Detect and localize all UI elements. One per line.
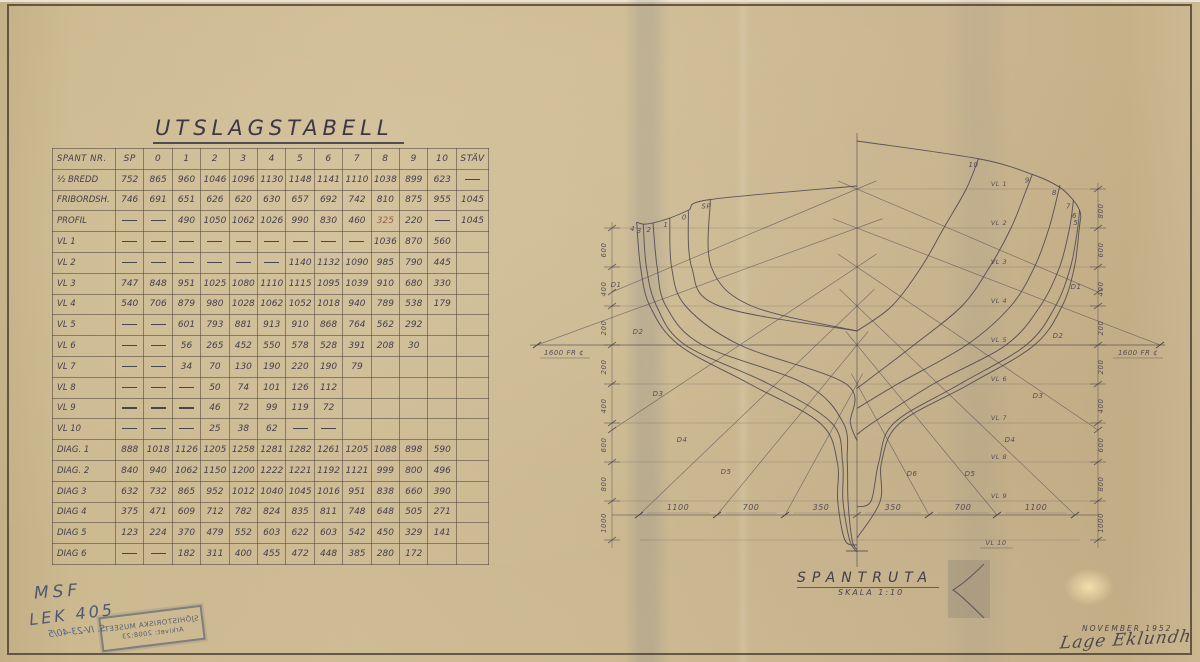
value-cell (457, 336, 489, 357)
dash-mark (122, 366, 137, 367)
dim-label-right: 400 (1097, 282, 1105, 297)
value-cell: 898 (400, 440, 428, 461)
plan-scale: SKALA 1:10 (838, 588, 904, 597)
value-cell: 1080 (229, 273, 257, 294)
value-cell (457, 356, 489, 377)
msf-note: MSF (33, 580, 82, 603)
value-cell: 220 (286, 356, 314, 377)
vl-label: VL 4 (991, 297, 1007, 305)
value-cell: 951 (172, 273, 200, 294)
value-cell: 101 (258, 377, 286, 398)
dim-label-left: 600 (600, 243, 608, 258)
value-cell: 1050 (201, 211, 229, 232)
value-cell (144, 544, 172, 565)
offsets-table-container: SPANT NR.SP012345678910STÄV½ BREDD752865… (52, 148, 489, 565)
value-cell: 271 (428, 502, 457, 523)
dash-mark (179, 428, 194, 429)
value-cell: 910 (286, 315, 314, 336)
value-cell: 810 (371, 190, 399, 211)
paper-edge (0, 0, 1200, 2)
value-cell: 590 (428, 440, 457, 461)
row-label-cell: VL 7 (53, 356, 116, 377)
value-cell: 1205 (343, 440, 371, 461)
dash-mark (151, 345, 166, 346)
value-cell: 940 (343, 294, 371, 315)
value-cell: 940 (144, 460, 172, 481)
value-cell: 123 (116, 523, 144, 544)
value-cell: 224 (144, 523, 172, 544)
diag-label: D2 (633, 328, 644, 336)
value-cell (116, 544, 144, 565)
table-row: PROFIL4901050106210269908304603252201045 (53, 211, 489, 232)
dash-mark (435, 220, 450, 221)
value-cell (457, 273, 489, 294)
dim-label-bottom: 1100 (1025, 503, 1047, 512)
value-cell (144, 211, 172, 232)
value-cell: 1012 (229, 481, 257, 502)
row-label-cell: VL 9 (53, 398, 116, 419)
value-cell: 1132 (314, 252, 342, 273)
vl-label: VL 9 (991, 492, 1007, 500)
value-cell: 811 (314, 502, 342, 523)
value-cell: 1018 (314, 294, 342, 315)
diagonal-line (612, 181, 877, 292)
value-cell: 879 (172, 294, 200, 315)
value-cell: 764 (343, 315, 371, 336)
offsets-table: SPANT NR.SP012345678910STÄV½ BREDD752865… (52, 148, 489, 565)
value-cell: 1090 (343, 252, 371, 273)
value-cell: 400 (229, 544, 257, 565)
value-cell (144, 336, 172, 357)
table-row: ½ BREDD752865960104610961130114811411110… (53, 169, 489, 190)
dim-label-right: 600 (1097, 243, 1105, 258)
column-header: SP (116, 149, 144, 170)
dim-label-left: 600 (600, 438, 608, 453)
value-cell: 789 (371, 294, 399, 315)
row-label-cell: VL 8 (53, 377, 116, 398)
value-cell: 609 (172, 502, 200, 523)
value-cell: 46 (201, 398, 229, 419)
value-cell: 952 (201, 481, 229, 502)
value-cell (457, 294, 489, 315)
value-cell: 74 (229, 377, 257, 398)
dim-label-left: 1000 (600, 513, 608, 533)
row-label-cell: DIAG 4 (53, 502, 116, 523)
plan-title: SPANTRUTA (797, 570, 939, 588)
dash-mark (321, 428, 336, 429)
value-cell: 692 (314, 190, 342, 211)
value-cell: 391 (343, 336, 371, 357)
vl-label: VL 3 (991, 258, 1007, 266)
value-cell: 496 (428, 460, 457, 481)
value-cell: 385 (343, 544, 371, 565)
dim-label-left: 400 (600, 282, 608, 297)
value-cell: 479 (201, 523, 229, 544)
value-cell: 1040 (258, 481, 286, 502)
value-cell: 552 (229, 523, 257, 544)
value-cell (457, 440, 489, 461)
value-cell (457, 523, 489, 544)
value-cell: 190 (258, 356, 286, 377)
value-cell: 955 (428, 190, 457, 211)
value-cell (116, 315, 144, 336)
value-cell (400, 419, 428, 440)
table-row: VL 10253862 (53, 419, 489, 440)
archive-handwritten-number: S. IV-23-40/5 (48, 624, 106, 640)
value-cell (258, 252, 286, 273)
value-cell (343, 419, 371, 440)
value-cell: 620 (229, 190, 257, 211)
value-cell: 112 (314, 377, 342, 398)
value-cell: 1025 (201, 273, 229, 294)
value-cell (116, 252, 144, 273)
value-cell: 868 (314, 315, 342, 336)
value-cell: 1282 (286, 440, 314, 461)
header-row: SPANT NR.SP012345678910STÄV (53, 149, 489, 170)
value-cell: 899 (400, 169, 428, 190)
value-cell: 848 (144, 273, 172, 294)
value-cell: 1221 (286, 460, 314, 481)
drawing-sheet: UTSLAGSTABELL SPANT NR.SP012345678910STÄ… (0, 0, 1200, 662)
value-cell: 648 (371, 502, 399, 523)
value-cell: 1095 (314, 273, 342, 294)
dash-mark (236, 241, 251, 242)
dash-mark (151, 366, 166, 367)
value-cell: 1281 (258, 440, 286, 461)
row-label-cell: VL 1 (53, 232, 116, 253)
dash-mark (151, 241, 166, 242)
value-cell: 840 (116, 460, 144, 481)
diag-label: D1 (611, 281, 622, 289)
value-cell (400, 398, 428, 419)
value-cell: 38 (229, 419, 257, 440)
frame-label: SP (702, 203, 712, 211)
column-header: 8 (371, 149, 399, 170)
value-cell: 913 (258, 315, 286, 336)
value-cell: 1126 (172, 440, 200, 461)
diag-label: D1 (1071, 283, 1082, 291)
diag-label: D3 (1033, 392, 1044, 400)
value-cell: 1222 (258, 460, 286, 481)
dash-mark (122, 387, 137, 388)
value-cell: 603 (258, 523, 286, 544)
diagonal-line (833, 219, 1160, 345)
value-cell: 1045 (457, 190, 489, 211)
table-row: VL 7347013019022019079 (53, 356, 489, 377)
dash-mark (151, 262, 166, 263)
value-cell: 62 (258, 419, 286, 440)
dash-mark (151, 407, 166, 408)
table-row: DIAG 51232243704795526036226035424503291… (53, 523, 489, 544)
value-cell: 179 (428, 294, 457, 315)
vl-label: VL 7 (991, 414, 1008, 422)
table-row: DIAG. 1888101811261205125812811282126112… (53, 440, 489, 461)
frame-label: 9 (1025, 176, 1030, 184)
value-cell (172, 232, 200, 253)
value-cell: 325 (371, 211, 399, 232)
value-cell (172, 377, 200, 398)
dash-mark (236, 262, 251, 263)
value-cell: 1088 (371, 440, 399, 461)
value-cell: 528 (314, 336, 342, 357)
vl-label: VL 6 (991, 375, 1007, 383)
value-cell: 1110 (258, 273, 286, 294)
value-cell: 1121 (343, 460, 371, 481)
dim-label-bottom: 700 (955, 503, 972, 512)
value-cell: 1205 (201, 440, 229, 461)
value-cell: 578 (286, 336, 314, 357)
row-label-cell: VL 4 (53, 294, 116, 315)
dash-mark (293, 428, 308, 429)
value-cell: 793 (201, 315, 229, 336)
diagonal-line (639, 289, 874, 515)
row-label-cell: DIAG. 2 (53, 460, 116, 481)
value-cell: 280 (371, 544, 399, 565)
value-cell: 1062 (229, 211, 257, 232)
value-cell: 603 (314, 523, 342, 544)
dash-mark (122, 262, 137, 263)
row-label-cell: DIAG. 1 (53, 440, 116, 461)
value-cell (371, 398, 399, 419)
dash-mark (179, 241, 194, 242)
column-header: 2 (201, 149, 229, 170)
value-cell (201, 252, 229, 273)
value-cell (116, 419, 144, 440)
value-cell (116, 356, 144, 377)
column-header: 6 (314, 149, 342, 170)
value-cell: 550 (258, 336, 286, 357)
dash-mark (151, 324, 166, 325)
value-cell (457, 544, 489, 565)
value-cell (144, 252, 172, 273)
value-cell: 980 (201, 294, 229, 315)
value-cell: 1045 (286, 481, 314, 502)
table-title: UTSLAGSTABELL (153, 116, 404, 144)
value-cell: 800 (400, 460, 428, 481)
diag-label: D2 (1053, 332, 1064, 340)
vl-label: VL 8 (991, 453, 1007, 461)
value-cell: 742 (343, 190, 371, 211)
dim-label-right: 200 (1097, 360, 1105, 375)
value-cell: 1148 (286, 169, 314, 190)
value-cell: 375 (116, 502, 144, 523)
value-cell: 460 (343, 211, 371, 232)
value-cell (428, 211, 457, 232)
value-cell: 824 (258, 502, 286, 523)
column-header: 0 (144, 149, 172, 170)
value-cell (116, 377, 144, 398)
dim-label-bottom: 1100 (667, 503, 689, 512)
value-cell (400, 356, 428, 377)
table-row: VL 946729911972 (53, 398, 489, 419)
dash-mark (122, 407, 137, 408)
column-header: 1 (172, 149, 200, 170)
value-cell: 455 (258, 544, 286, 565)
value-cell: 208 (371, 336, 399, 357)
frame-label: 1 (663, 221, 668, 229)
value-cell: 732 (144, 481, 172, 502)
value-cell: 747 (116, 273, 144, 294)
value-cell: 370 (172, 523, 200, 544)
dash-mark (179, 387, 194, 388)
value-cell (343, 398, 371, 419)
frame-curve (857, 185, 1060, 408)
value-cell (116, 336, 144, 357)
frame-label: 8 (1052, 189, 1057, 197)
table-row: DIAG 36327328659521012104010451016951838… (53, 481, 489, 502)
value-cell: 72 (314, 398, 342, 419)
value-cell: 748 (343, 502, 371, 523)
dash-mark (122, 428, 137, 429)
value-cell: 790 (400, 252, 428, 273)
diagonal-line (851, 374, 929, 515)
dash-mark (151, 428, 166, 429)
value-cell: 1150 (201, 460, 229, 481)
row-label-cell: DIAG 3 (53, 481, 116, 502)
sheer-line-left (637, 186, 857, 224)
value-cell: 691 (144, 190, 172, 211)
value-cell: 910 (371, 273, 399, 294)
value-cell (400, 377, 428, 398)
row-label-cell: VL 10 (53, 419, 116, 440)
column-header: 7 (343, 149, 371, 170)
value-cell: 1115 (286, 273, 314, 294)
value-cell: 172 (400, 544, 428, 565)
value-cell: 34 (172, 356, 200, 377)
value-cell (144, 419, 172, 440)
value-cell: 30 (400, 336, 428, 357)
dash-mark (122, 324, 137, 325)
row-label-cell: VL 6 (53, 336, 116, 357)
value-cell: 452 (229, 336, 257, 357)
frame-label: 7 (1066, 202, 1071, 210)
table-row: VL 85074101126112 (53, 377, 489, 398)
value-cell (457, 460, 489, 481)
value-cell: 623 (428, 169, 457, 190)
value-cell (428, 356, 457, 377)
dim-label-bottom: 350 (885, 503, 902, 512)
value-cell (457, 398, 489, 419)
value-cell: 1261 (314, 440, 342, 461)
value-cell: 835 (286, 502, 314, 523)
value-cell (457, 502, 489, 523)
value-cell: 865 (172, 481, 200, 502)
diag-label: D4 (677, 436, 688, 444)
dash-mark (151, 220, 166, 221)
value-cell: 540 (116, 294, 144, 315)
value-cell (457, 232, 489, 253)
dash-mark (122, 345, 137, 346)
diag-label: D3 (653, 390, 664, 398)
value-cell: 72 (229, 398, 257, 419)
column-header: STÄV (457, 149, 489, 170)
value-cell: 752 (116, 169, 144, 190)
value-cell: 985 (371, 252, 399, 273)
dim-label-left: 200 (600, 360, 608, 375)
frame-curve (637, 222, 857, 545)
tape-patch (948, 560, 990, 618)
value-cell: 680 (400, 273, 428, 294)
dash-mark (349, 241, 364, 242)
value-cell (172, 252, 200, 273)
table-row: DIAG 43754716097127828248358117486485052… (53, 502, 489, 523)
value-cell (116, 232, 144, 253)
pencil-mark (948, 560, 990, 618)
dash-mark (207, 262, 222, 263)
value-cell: 1096 (229, 169, 257, 190)
diagonal-line (838, 254, 1098, 430)
row-label-cell: VL 3 (53, 273, 116, 294)
dash-mark (122, 241, 137, 242)
value-cell: 626 (201, 190, 229, 211)
value-cell: 1192 (314, 460, 342, 481)
value-cell: 538 (400, 294, 428, 315)
table-row: FRIBORDSH.746691651626620630657692742810… (53, 190, 489, 211)
value-cell: 875 (400, 190, 428, 211)
frame-curve (857, 210, 1079, 507)
dash-mark (179, 262, 194, 263)
value-cell: 870 (400, 232, 428, 253)
row-label-cell: DIAG 6 (53, 544, 116, 565)
value-cell: 1045 (457, 211, 489, 232)
value-cell (229, 232, 257, 253)
dim-label-right: 600 (1097, 438, 1105, 453)
value-cell: 1039 (343, 273, 371, 294)
value-cell (428, 398, 457, 419)
value-cell: 657 (286, 190, 314, 211)
diag-label: D5 (965, 470, 976, 478)
dim-label-left: 400 (600, 399, 608, 414)
dim-label-right: 400 (1097, 399, 1105, 414)
value-cell: 1062 (258, 294, 286, 315)
value-cell: 99 (258, 398, 286, 419)
frame-label: 10 (969, 161, 979, 169)
value-cell: 79 (343, 356, 371, 377)
value-cell: 712 (201, 502, 229, 523)
value-cell: 472 (286, 544, 314, 565)
value-cell: 706 (144, 294, 172, 315)
frame-label: 0 (682, 213, 687, 221)
value-cell: 182 (172, 544, 200, 565)
value-cell (371, 377, 399, 398)
value-cell (258, 232, 286, 253)
value-cell (428, 315, 457, 336)
column-header: 5 (286, 149, 314, 170)
row-label-cell: VL 5 (53, 315, 116, 336)
value-cell: 56 (172, 336, 200, 357)
column-header: 3 (229, 149, 257, 170)
value-cell: 119 (286, 398, 314, 419)
value-cell: 1036 (371, 232, 399, 253)
dash-mark (122, 553, 137, 554)
value-cell: 329 (400, 523, 428, 544)
value-cell: 881 (229, 315, 257, 336)
value-cell (144, 356, 172, 377)
value-cell (457, 252, 489, 273)
value-cell (428, 544, 457, 565)
dash-mark (207, 241, 222, 242)
frame-curve (857, 217, 1081, 538)
value-cell (172, 419, 200, 440)
value-cell: 1028 (229, 294, 257, 315)
value-cell (116, 398, 144, 419)
value-cell: 1200 (229, 460, 257, 481)
value-cell (286, 419, 314, 440)
dash-mark (321, 241, 336, 242)
dash-mark (122, 220, 137, 221)
frame-label: 6 (1072, 212, 1077, 220)
value-cell (343, 232, 371, 253)
